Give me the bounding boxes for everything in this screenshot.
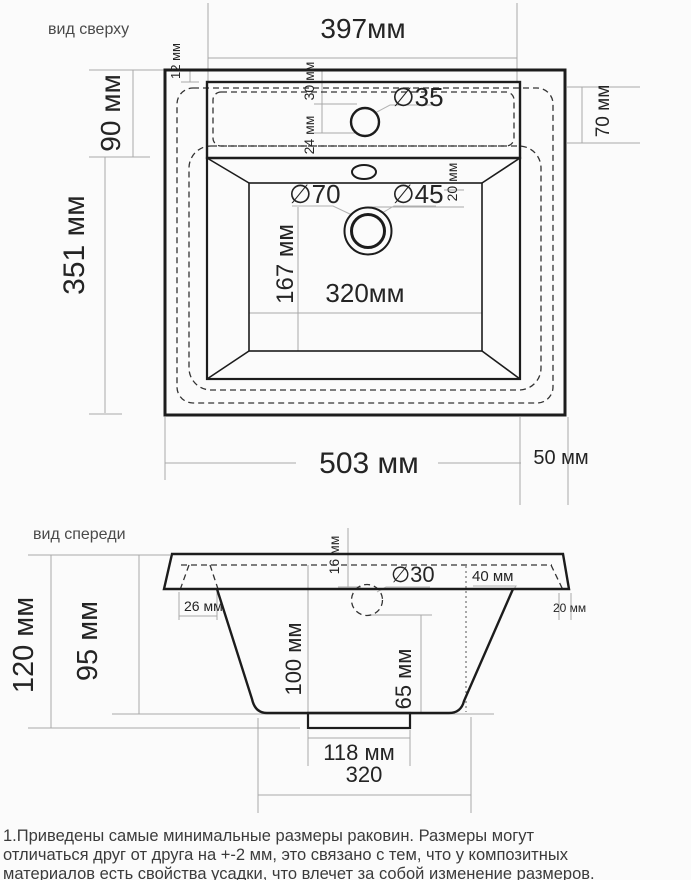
- footnote-line-1: 1.Приведены самые минимальные размеры ра…: [3, 827, 535, 845]
- sink-outer-edge: [165, 70, 565, 415]
- deck-surface-edge-dashed: [213, 92, 514, 146]
- dim-width-top-label: 397мм: [320, 13, 405, 44]
- sink-technical-drawing: вид сверху 397мм 12 мм 90 мм 351 мм 30 м…: [0, 0, 691, 880]
- dim-drain-offset-label: 20 мм: [444, 163, 460, 202]
- bowl-profile: [217, 589, 513, 713]
- drain-hole: [352, 215, 385, 248]
- dim-rim-offset-label: 12 мм: [168, 43, 183, 79]
- footnote: 1.Приведены самые минимальные размеры ра…: [3, 827, 595, 880]
- dim-rim-thickness-label: 16 мм: [326, 536, 342, 575]
- footnote-line-2: отличаться друг от друга на +-2 мм, это …: [3, 846, 569, 864]
- dim-deck-width-label: 40 мм: [472, 568, 513, 585]
- dim-deck-depth-right-label: 70 мм: [593, 85, 614, 138]
- front-faucet-diameter-label: ∅30: [391, 562, 435, 587]
- bowl-corner-slopes: [207, 158, 520, 379]
- dim-total-height-label: 120 мм: [8, 597, 40, 693]
- dim-bowl-height-label: 95 мм: [72, 601, 104, 681]
- top-view: вид сверху 397мм 12 мм 90 мм 351 мм 30 м…: [48, 3, 640, 505]
- faucet-hole: [351, 108, 379, 136]
- front-view-title: вид спереди: [33, 526, 126, 543]
- dim-drain-depth-label: 65 мм: [391, 649, 416, 710]
- dim-deck-depth-left-label: 90 мм: [95, 74, 126, 151]
- dim-bowl-width-label: 320мм: [325, 278, 404, 308]
- dim-drain-to-front-label: 167 мм: [272, 224, 299, 304]
- dim-hole-to-deck-label: 24 мм: [301, 116, 317, 155]
- top-view-title: вид сверху: [48, 21, 129, 38]
- drain-inner-diameter-label: ∅45: [392, 179, 444, 209]
- drain-flange: [308, 713, 410, 728]
- dim-hole-from-back-label: 30 мм: [301, 62, 317, 101]
- right-wall-hidden: [551, 565, 563, 590]
- drain-outer-diameter-label: ∅70: [289, 179, 341, 209]
- dim-edge-overhang-label: 20 мм: [553, 601, 586, 615]
- dim-total-width-label: 503 мм: [319, 447, 419, 480]
- dim-bowl-length-label: 351 мм: [58, 195, 91, 295]
- overflow-hole: [352, 165, 376, 179]
- dim-bottom-width-label: 320: [346, 762, 383, 787]
- left-wall-hidden: [180, 565, 218, 590]
- dim-wall-inset-label: 26 мм: [184, 598, 223, 614]
- dim-bowl-depth-label: 100 мм: [281, 622, 306, 695]
- faucet-hole-diameter-label: ∅35: [392, 82, 444, 112]
- dim-side-margin-label: 50 мм: [533, 447, 588, 469]
- bowl-opening: [207, 158, 520, 379]
- footnote-line-3: материалов есть свойства усадки, что вле…: [3, 865, 595, 880]
- front-view: вид спереди 120 мм 95 мм 16 мм 26 мм ∅30…: [8, 526, 586, 813]
